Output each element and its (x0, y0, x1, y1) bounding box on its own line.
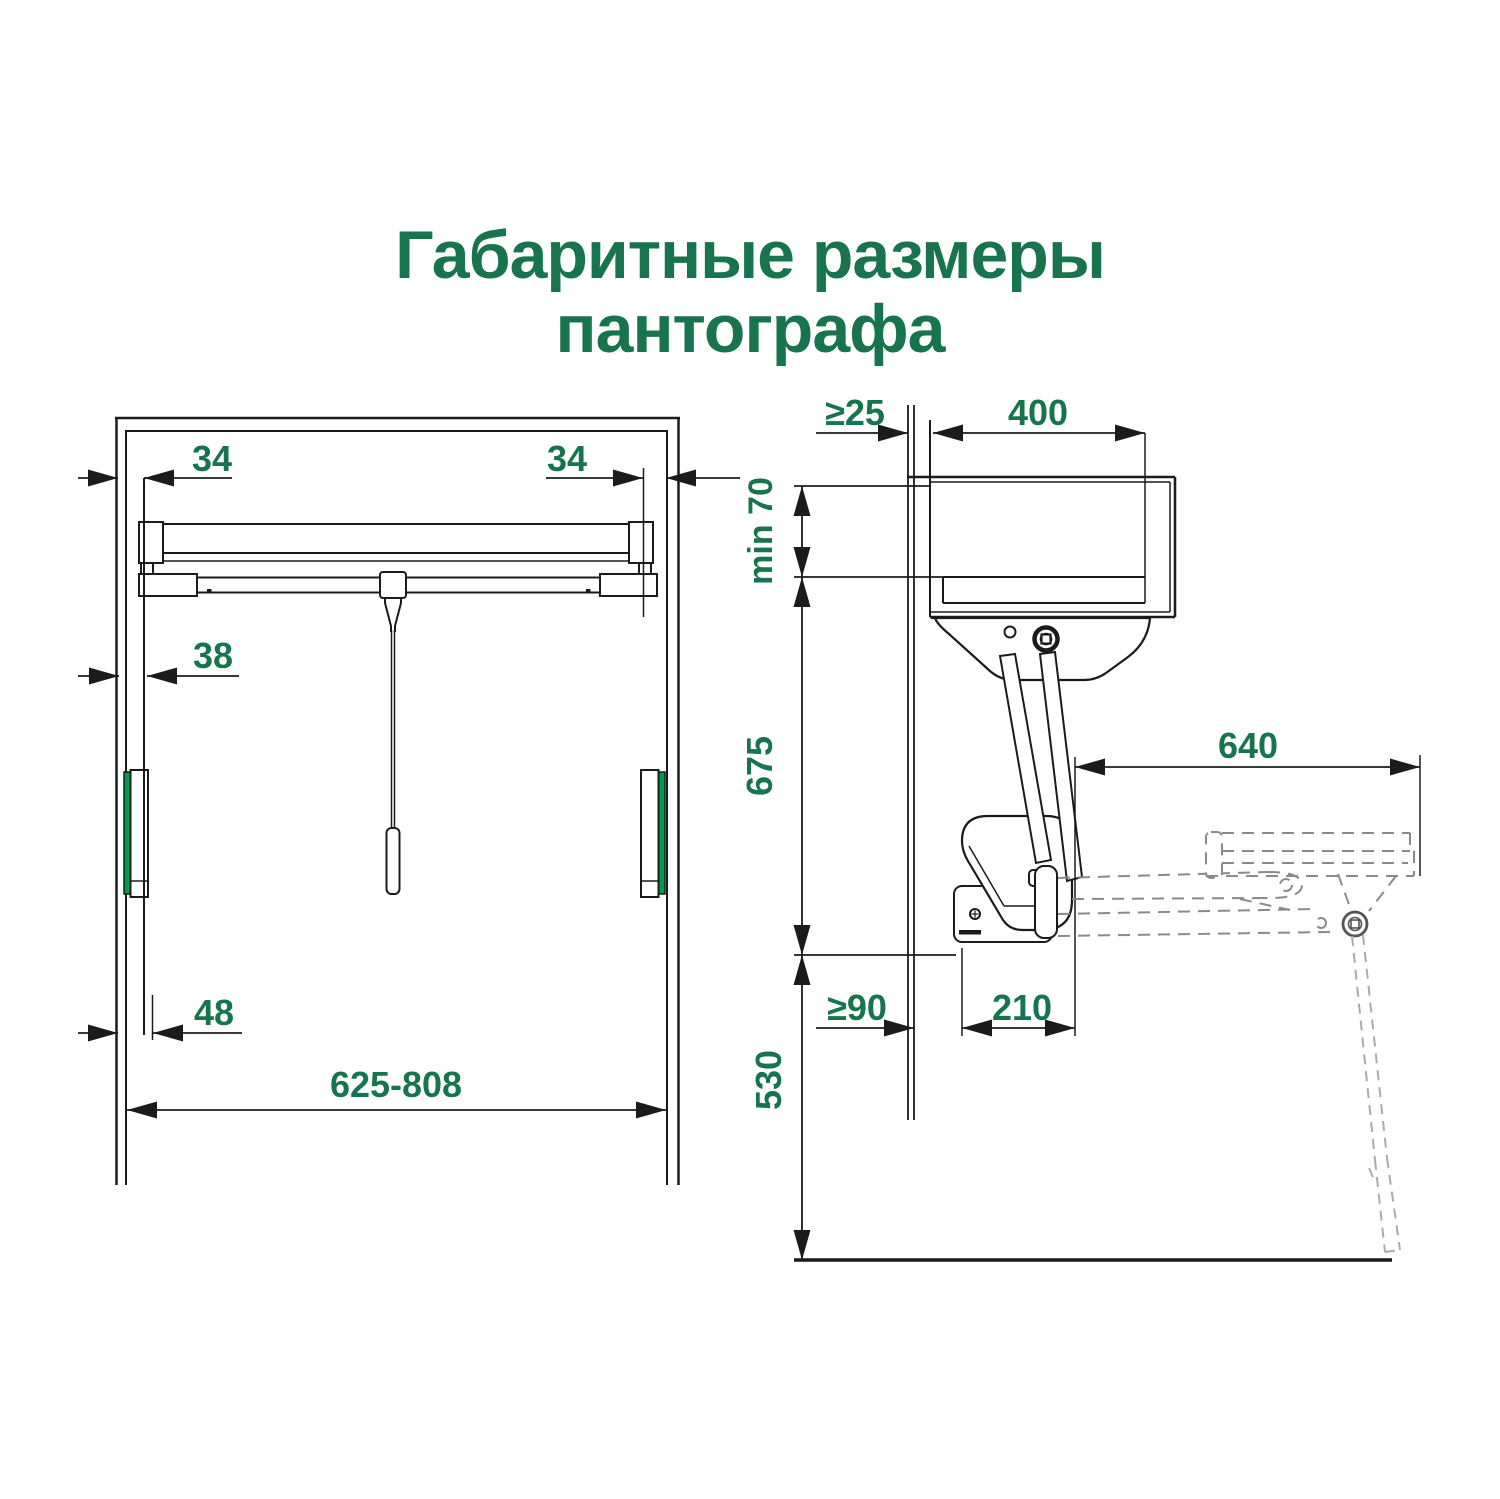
wall-panel (908, 405, 914, 1120)
pantograph-mechanism-stored (932, 618, 1150, 1036)
pivot-bolt-extended (1343, 912, 1367, 936)
pantograph-extended-dashed (1058, 832, 1414, 1252)
dim-label-top-depth: 400 (1008, 392, 1068, 433)
dim-extension: 640 (1075, 725, 1420, 876)
dim-label-drop: 530 (748, 1050, 789, 1110)
arm-pivot-bolt (1035, 628, 1058, 651)
pull-handle (380, 572, 406, 894)
pantograph-dimensions-diagram: Габаритные размеры пантографа (0, 0, 1500, 1499)
dim-label-unit-depth: 210 (992, 987, 1052, 1028)
arm-pivot-small (1005, 627, 1016, 638)
dim-label-rail-offset: 38 (193, 635, 233, 676)
dim-back-gap: ≥25 (816, 392, 908, 442)
page-title: Габаритные размеры пантографа (395, 217, 1105, 367)
vertical-dim-chain: min 70 675 530 (739, 477, 956, 1260)
right-rail (641, 770, 665, 897)
dim-label-back-gap: ≥25 (825, 392, 885, 433)
dim-label-height-closed: 675 (739, 736, 780, 796)
dim-label-extension: 640 (1218, 725, 1278, 766)
dim-label-right-offset: 34 (547, 438, 587, 479)
dim-rail-offset: 38 (78, 635, 239, 685)
handle-catch (1035, 866, 1057, 938)
pantograph-crossbar (139, 522, 653, 576)
title-line-1: Габаритные размеры (395, 217, 1105, 293)
title-line-2: пантографа (556, 291, 947, 367)
cabinet-top-box (907, 420, 1175, 617)
latch-mark (959, 930, 981, 935)
dim-top-depth: 400 (933, 392, 1145, 442)
basket-extended (1206, 832, 1414, 878)
dim-bottom-offset: 48 (78, 992, 242, 1042)
dim-label-bottom-offset: 48 (194, 992, 234, 1033)
dim-label-width-range: 625-808 (330, 1064, 462, 1105)
dim-width-range: 625-808 (127, 1064, 666, 1119)
pull-handle-extended (1352, 935, 1400, 1252)
front-view-drawing: 34 34 38 48 (78, 417, 740, 1185)
dim-label-top-clearance: min 70 (742, 477, 780, 585)
side-view-drawing: ≥25 400 min 70 675 530 (739, 392, 1420, 1260)
dim-unit-depth: 210 (962, 948, 1075, 1037)
dim-left-offset: 34 (78, 438, 232, 487)
dim-label-left-offset: 34 (192, 438, 232, 479)
dim-wall-clearance: ≥90 (816, 987, 914, 1037)
dim-label-wall-clearance: ≥90 (827, 987, 887, 1028)
